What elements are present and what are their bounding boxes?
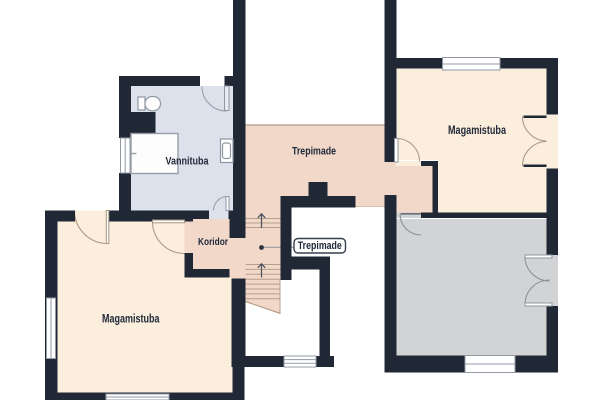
svg-text:Magamistuba: Magamistuba [448,125,506,137]
svg-text:Vannituba: Vannituba [166,155,210,167]
svg-text:Magamistuba: Magamistuba [102,314,160,326]
svg-text:Koridor: Koridor [198,237,228,248]
svg-text:Trepimade: Trepimade [292,146,336,158]
svg-text:Trepimade: Trepimade [298,240,342,252]
